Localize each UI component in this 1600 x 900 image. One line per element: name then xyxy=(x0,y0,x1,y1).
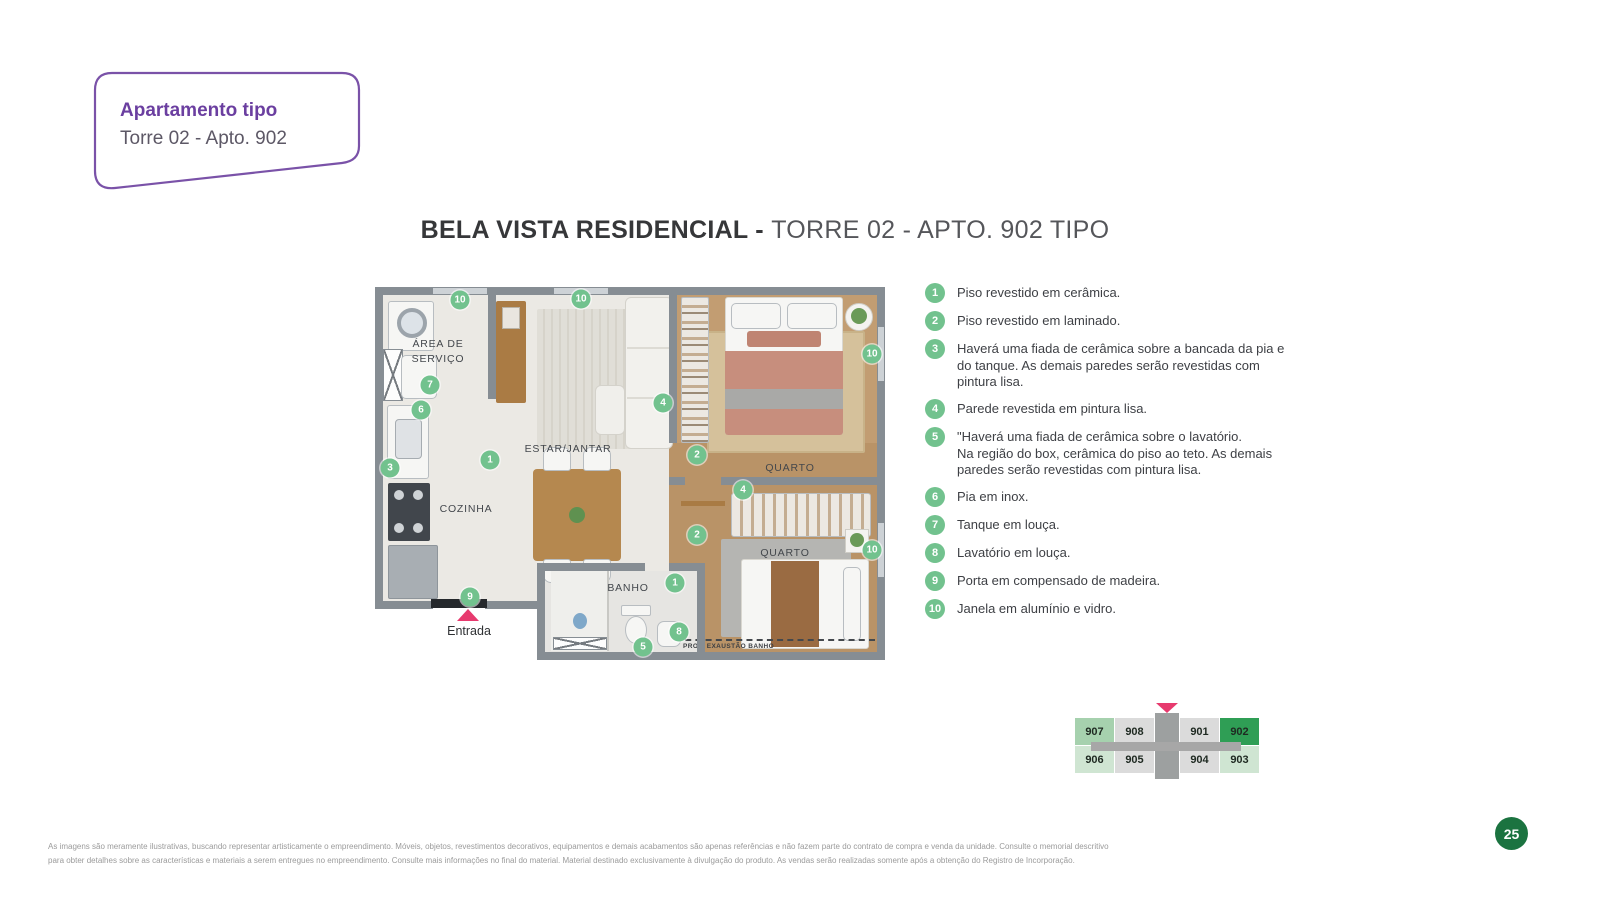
bedroom2-plant-leaves xyxy=(850,533,864,547)
legend-number-badge: 1 xyxy=(925,283,945,303)
unit-location-map: 907908901902 906905904903 xyxy=(1075,703,1259,781)
legend-item-5: 5"Haverá uma fiada de cerâmica sobre o l… xyxy=(925,427,1285,479)
room-label-quarto-2: QUARTO xyxy=(760,547,809,559)
plan-marker-2: 2 xyxy=(688,446,707,465)
legend-item-text: Parede revestida em pintura lisa. xyxy=(957,399,1285,419)
wall-bottom xyxy=(537,652,885,660)
unit-map-arrow-icon xyxy=(1156,703,1178,713)
stove-burner xyxy=(413,490,423,500)
bed2-pillow xyxy=(843,567,861,641)
footer-disclaimer: As imagens são meramente ilustrativas, b… xyxy=(48,840,1188,867)
legend-item-text: Porta em compensado de madeira. xyxy=(957,571,1285,591)
toilet-tank xyxy=(621,605,651,616)
console-decor xyxy=(502,307,520,329)
plan-marker-5: 5 xyxy=(634,638,653,657)
page-number-badge: 25 xyxy=(1495,817,1528,850)
legend-item-text: Haverá uma fiada de cerâmica sobre a ban… xyxy=(957,339,1285,391)
legend-item-text: Lavatório em louça. xyxy=(957,543,1285,563)
plan-marker-4: 4 xyxy=(654,394,673,413)
legend-item-text: Piso revestido em laminado. xyxy=(957,311,1285,331)
plan-marker-8: 8 xyxy=(670,623,689,642)
room-label-area-servico-1: ÁREA DE xyxy=(412,338,463,350)
legend-item-10: 10Janela em alumínio e vidro. xyxy=(925,599,1285,619)
plan-marker-4: 4 xyxy=(734,481,753,500)
unit-cell-902: 902 xyxy=(1220,718,1259,745)
legend-item-text: Pia em inox. xyxy=(957,487,1285,507)
wall-stub xyxy=(488,295,496,399)
bed1-accent-pillow xyxy=(747,331,821,347)
legend-number-badge: 5 xyxy=(925,427,945,447)
page-title: BELA VISTA RESIDENCIAL - TORRE 02 - APTO… xyxy=(370,216,1160,245)
footer-line-1: As imagens são meramente ilustrativas, b… xyxy=(48,840,1188,854)
legend-item-text: "Haverá uma fiada de cerâmica sobre o la… xyxy=(957,427,1285,479)
legend-item-3: 3Haverá uma fiada de cerâmica sobre a ba… xyxy=(925,339,1285,391)
service-area-door xyxy=(383,349,403,401)
unit-map-corridor xyxy=(1091,742,1241,751)
callout-subtitle: Torre 02 - Apto. 902 xyxy=(120,128,287,150)
legend-number-badge: 7 xyxy=(925,515,945,535)
exhaust-projection-area: PROJ. EXAUSTÃO BANHO xyxy=(675,639,875,652)
fridge xyxy=(388,545,438,599)
bedroom1-closet xyxy=(681,297,709,443)
bed2-runner xyxy=(771,561,819,647)
legend-item-9: 9Porta em compensado de madeira. xyxy=(925,571,1285,591)
footer-line-2: para obter detalhes sobre as característ… xyxy=(48,854,1188,868)
wall-kitchen-bottom-left xyxy=(375,601,433,609)
wall-bedrooms-left xyxy=(669,477,685,485)
bed1-pillow xyxy=(731,303,781,329)
legend-item-4: 4Parede revestida em pintura lisa. xyxy=(925,399,1285,419)
legend-item-8: 8Lavatório em louça. xyxy=(925,543,1285,563)
legend-number-badge: 8 xyxy=(925,543,945,563)
bedroom2-rail xyxy=(681,501,725,506)
unit-cell-908: 908 xyxy=(1115,718,1154,745)
plan-marker-10: 10 xyxy=(863,541,882,560)
legend-item-6: 6Pia em inox. xyxy=(925,487,1285,507)
room-label-cozinha: COZINHA xyxy=(440,503,493,515)
bedroom1-plant-leaves xyxy=(851,308,867,324)
plan-marker-3: 3 xyxy=(381,459,400,478)
legend-number-badge: 6 xyxy=(925,487,945,507)
page-title-light: TORRE 02 - APTO. 902 TIPO xyxy=(771,216,1109,244)
plan-marker-10: 10 xyxy=(451,291,470,310)
legend-number-badge: 10 xyxy=(925,599,945,619)
plan-marker-10: 10 xyxy=(572,290,591,309)
unit-cell-901: 901 xyxy=(1180,718,1219,745)
sofa xyxy=(625,297,673,449)
legend-item-2: 2Piso revestido em laminado. xyxy=(925,311,1285,331)
entrance-label: Entrada xyxy=(432,624,506,638)
table-centerpiece-plant xyxy=(569,507,585,523)
floor-plan: PROJ. EXAUSTÃO BANHO ÁREA DE SERVIÇO EST… xyxy=(375,287,885,660)
wall-kitchen-bottom-right xyxy=(485,601,545,609)
plan-marker-1: 1 xyxy=(481,451,500,470)
sofa-ottoman xyxy=(595,385,625,435)
wall-left xyxy=(375,287,383,609)
legend-number-badge: 2 xyxy=(925,311,945,331)
room-label-quarto-1: QUARTO xyxy=(765,462,814,474)
sofa-cushion-line xyxy=(627,347,671,349)
legend-item-text: Tanque em louça. xyxy=(957,515,1285,535)
page-title-bold: BELA VISTA RESIDENCIAL - xyxy=(421,216,772,244)
room-label-area-servico-2: SERVIÇO xyxy=(412,353,465,365)
unit-cell-907: 907 xyxy=(1075,718,1114,745)
plan-marker-9: 9 xyxy=(461,588,480,607)
legend-number-badge: 3 xyxy=(925,339,945,359)
shower-door xyxy=(553,637,607,650)
legend-number-badge: 9 xyxy=(925,571,945,591)
apartment-callout: Apartamento tipo Torre 02 - Apto. 902 xyxy=(92,70,364,192)
legend-item-text: Piso revestido em cerâmica. xyxy=(957,283,1285,303)
room-label-estar-jantar: ESTAR/JANTAR xyxy=(525,443,612,455)
plan-marker-6: 6 xyxy=(412,401,431,420)
wall-bathroom-top xyxy=(545,563,645,571)
legend-list: 1Piso revestido em cerâmica.2Piso revest… xyxy=(925,283,1285,619)
plan-marker-7: 7 xyxy=(421,376,440,395)
stove-burner xyxy=(394,523,404,533)
shower-drain xyxy=(573,613,587,629)
unit-row-1: 907908901902 xyxy=(1075,718,1259,745)
entrance-arrow-icon xyxy=(457,609,479,621)
bed1-throw xyxy=(725,389,843,409)
bed1-pillow xyxy=(787,303,837,329)
plan-marker-10: 10 xyxy=(863,345,882,364)
legend-item-text: Janela em alumínio e vidro. xyxy=(957,599,1285,619)
legend-item-1: 1Piso revestido em cerâmica. xyxy=(925,283,1285,303)
plan-marker-2: 2 xyxy=(688,526,707,545)
kitchen-sink xyxy=(395,419,422,459)
legend-number-badge: 4 xyxy=(925,399,945,419)
stove-burner xyxy=(413,523,423,533)
stove-burner xyxy=(394,490,404,500)
legend-item-7: 7Tanque em louça. xyxy=(925,515,1285,535)
wall-living-bedroom1 xyxy=(669,295,677,443)
wall-bathroom-right xyxy=(697,571,705,652)
room-label-banho: BANHO xyxy=(607,582,648,594)
wall-bathroom-top-right xyxy=(669,563,705,571)
unit-core-spacer xyxy=(1155,718,1179,745)
wall-bathroom-left xyxy=(537,563,545,660)
callout-title: Apartamento tipo xyxy=(120,100,277,122)
washing-machine-drum xyxy=(397,308,427,338)
plan-marker-1: 1 xyxy=(666,574,685,593)
